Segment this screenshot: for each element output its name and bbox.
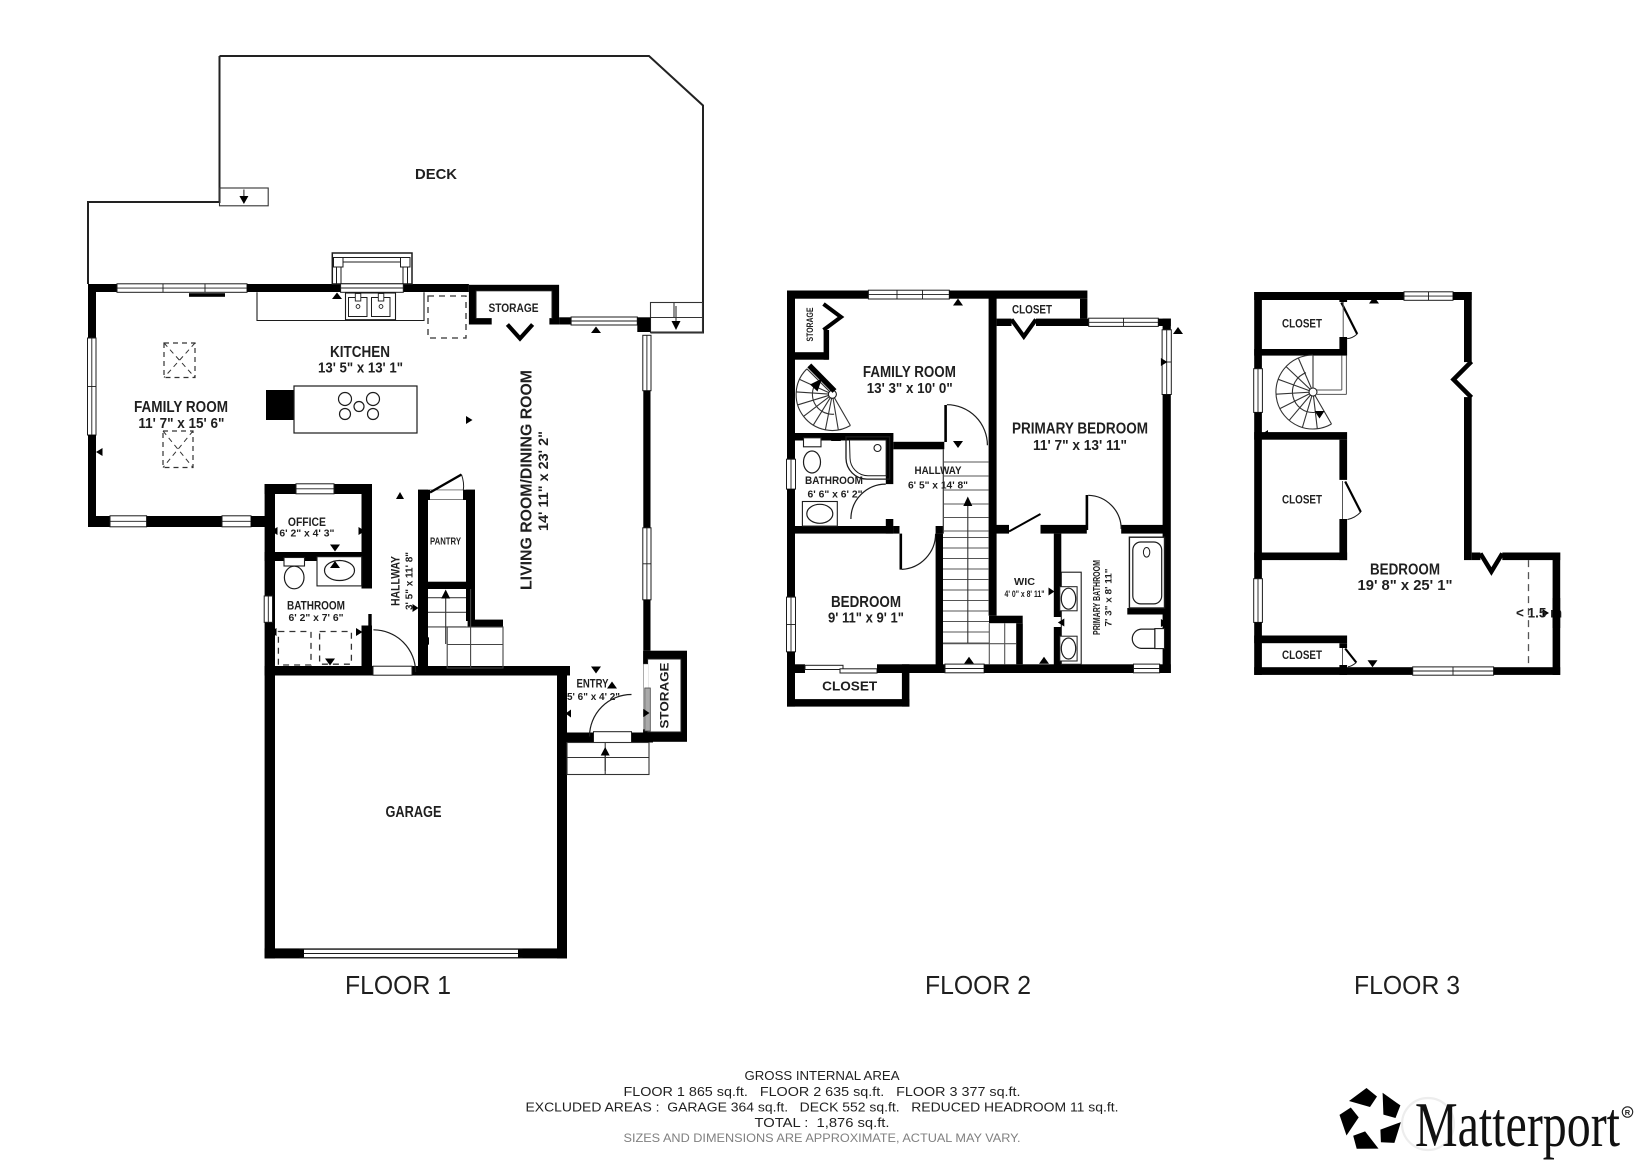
svg-text:3' 5" x 11' 8": 3' 5" x 11' 8" — [404, 552, 416, 610]
svg-text:FLOOR 1 865 sq.ft. FLOOR 2 6: FLOOR 1 865 sq.ft. FLOOR 2 635 sq.ft. FL… — [624, 1084, 1021, 1099]
svg-text:DECK: DECK — [415, 166, 457, 183]
svg-text:CLOSET: CLOSET — [1282, 648, 1323, 662]
svg-text:CLOSET: CLOSET — [1012, 303, 1053, 317]
svg-text:FLOOR 1: FLOOR 1 — [345, 970, 451, 1000]
svg-text:FAMILY ROOM: FAMILY ROOM — [863, 364, 956, 381]
svg-text:BATHROOM: BATHROOM — [805, 475, 863, 487]
svg-text:KITCHEN: KITCHEN — [330, 344, 390, 361]
svg-text:Matterport: Matterport — [1415, 1089, 1620, 1160]
svg-text:LIVING ROOM/DINING ROOM: LIVING ROOM/DINING ROOM — [519, 370, 536, 590]
svg-text:6' 2" x 7' 6": 6' 2" x 7' 6" — [289, 612, 344, 624]
svg-text:WIC: WIC — [1014, 577, 1035, 588]
svg-text:19' 8" x 25' 1": 19' 8" x 25' 1" — [1358, 578, 1453, 594]
svg-text:13' 3" x 10' 0": 13' 3" x 10' 0" — [867, 381, 953, 397]
svg-text:FLOOR 3: FLOOR 3 — [1354, 970, 1460, 1000]
svg-text:PANTRY: PANTRY — [430, 536, 461, 548]
svg-text:6' 6" x 6' 2": 6' 6" x 6' 2" — [808, 488, 863, 500]
svg-text:BEDROOM: BEDROOM — [831, 594, 901, 611]
svg-text:BATHROOM: BATHROOM — [287, 598, 345, 612]
svg-text:FAMILY ROOM: FAMILY ROOM — [134, 399, 228, 416]
svg-text:4' 0" x 8' 11": 4' 0" x 8' 11" — [1005, 589, 1045, 600]
svg-text:6' 5" x 14' 8": 6' 5" x 14' 8" — [908, 479, 968, 491]
svg-text:ENTRY: ENTRY — [577, 676, 609, 690]
svg-text:STORAGE: STORAGE — [805, 308, 816, 342]
svg-text:PRIMARY BEDROOM: PRIMARY BEDROOM — [1012, 421, 1148, 438]
svg-text:PRIMARY BATHROOM: PRIMARY BATHROOM — [1092, 560, 1103, 635]
svg-text:CLOSET: CLOSET — [1282, 492, 1323, 506]
svg-text:EXCLUDED AREAS : GARAGE 364 s: EXCLUDED AREAS : GARAGE 364 sq.ft. DECK … — [526, 1100, 1119, 1115]
svg-text:7' 3" x 8' 11": 7' 3" x 8' 11" — [1104, 569, 1115, 627]
svg-text:BEDROOM: BEDROOM — [1370, 562, 1440, 579]
svg-text:13' 5" x 13' 1": 13' 5" x 13' 1" — [318, 361, 403, 377]
svg-text:STORAGE: STORAGE — [658, 663, 672, 729]
svg-text:GARAGE: GARAGE — [386, 804, 442, 821]
svg-text:HALLWAY: HALLWAY — [388, 556, 402, 606]
svg-text:CLOSET: CLOSET — [822, 680, 877, 694]
svg-text:HALLWAY: HALLWAY — [915, 465, 963, 477]
svg-text:11' 7" x 15' 6": 11' 7" x 15' 6" — [138, 416, 224, 432]
svg-text:SIZES AND DIMENSIONS ARE APPRO: SIZES AND DIMENSIONS ARE APPROXIMATE, AC… — [624, 1131, 1021, 1145]
svg-text:CLOSET: CLOSET — [1282, 316, 1323, 330]
svg-text:14' 11" x 23' 2": 14' 11" x 23' 2" — [535, 431, 551, 531]
svg-text:5' 6" x 4' 2": 5' 6" x 4' 2" — [567, 691, 620, 703]
svg-text:6' 2" x 4' 3": 6' 2" x 4' 3" — [279, 528, 334, 540]
svg-text:TOTAL : 1,876 sq.ft.: TOTAL : 1,876 sq.ft. — [755, 1115, 890, 1130]
svg-text:11' 7" x 13' 11": 11' 7" x 13' 11" — [1033, 438, 1127, 454]
svg-text:FLOOR 2: FLOOR 2 — [925, 970, 1031, 1000]
svg-text:STORAGE: STORAGE — [489, 301, 539, 315]
svg-text:9' 11" x 9' 1": 9' 11" x 9' 1" — [828, 611, 904, 627]
svg-text:R: R — [1625, 1108, 1631, 1117]
svg-text:GROSS INTERNAL AREA: GROSS INTERNAL AREA — [745, 1068, 900, 1083]
